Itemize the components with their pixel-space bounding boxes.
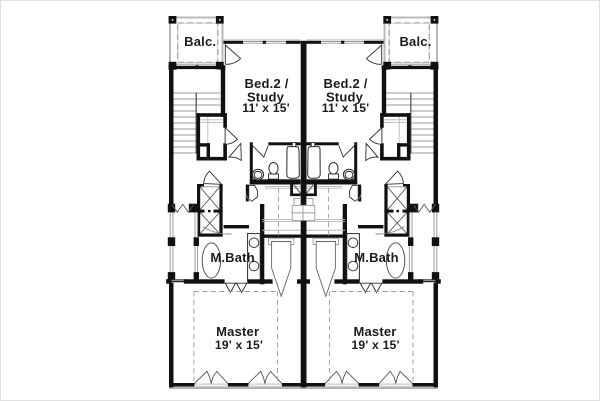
svg-text:Master: Master (353, 324, 396, 339)
svg-text:M.Bath: M.Bath (354, 250, 399, 265)
svg-text:11' x 15': 11' x 15' (322, 101, 370, 115)
svg-text:11' x 15': 11' x 15' (242, 101, 290, 115)
svg-text:Master: Master (216, 324, 259, 339)
svg-text:19' x 15': 19' x 15' (215, 338, 263, 352)
svg-text:M.Bath: M.Bath (210, 250, 255, 265)
svg-text:Balc.: Balc. (399, 34, 431, 49)
svg-text:Balc.: Balc. (184, 34, 216, 49)
svg-text:19' x 15': 19' x 15' (351, 338, 399, 352)
